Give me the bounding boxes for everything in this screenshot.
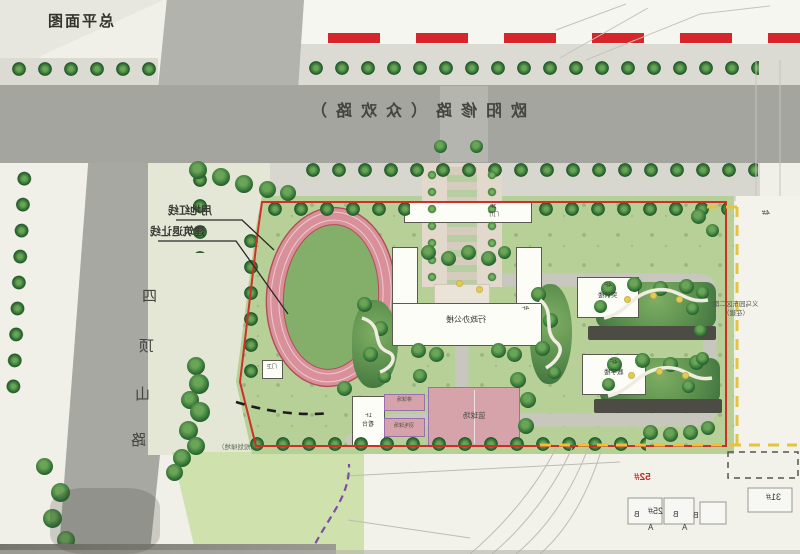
admin-label: 行政办公楼 xyxy=(446,315,486,324)
shrub xyxy=(624,296,631,303)
gate-label: 3F 门厅 xyxy=(488,203,499,219)
badminton-label: 羽毛球场 xyxy=(385,424,424,430)
garden-paths xyxy=(362,290,712,396)
shrub xyxy=(676,296,683,303)
west-road-char: 顶 xyxy=(139,338,154,355)
site-plan-sheet: 总平面图 欧阳修路（众欢路） 四 顶 山 路 用地红线 建筑退让线 3F 门厅 … xyxy=(0,0,800,554)
page-title: 总平面图 xyxy=(46,13,114,30)
plot-mark-b: B xyxy=(673,510,678,519)
shrub xyxy=(682,372,689,379)
grandstand-label: 1F 看台 xyxy=(353,412,384,430)
main-road-label: 欧阳修路（众欢路） xyxy=(250,103,580,121)
west-road-char: 四 xyxy=(142,288,157,305)
plot-mark-b: B xyxy=(693,511,698,520)
shrub xyxy=(456,280,463,287)
adjacent-project-label: 义乌园东区二期 （在建） xyxy=(696,300,776,318)
purple-dashed-line xyxy=(310,464,349,554)
basketball-label: 篮球场 xyxy=(446,412,502,421)
plot-4: 4# xyxy=(762,210,770,218)
plot-31: 31# xyxy=(766,492,781,502)
site-linework-over xyxy=(0,0,800,554)
west-road-char: 山 xyxy=(135,386,150,403)
road-shadow xyxy=(50,488,160,554)
plot-52-red: 52# xyxy=(634,472,651,484)
yellow-dashed-line xyxy=(540,207,797,445)
gray-dashed-parcel xyxy=(728,452,798,478)
shrub xyxy=(650,292,657,299)
shrub xyxy=(656,368,663,375)
west-road-char: 路 xyxy=(131,432,146,449)
shrub xyxy=(628,372,635,379)
lawn-note: （规划绿地） xyxy=(218,444,257,451)
plot-25: 25# xyxy=(648,506,663,516)
cadastral-lines-north xyxy=(556,4,780,196)
plot-mark-a: A xyxy=(682,523,687,532)
guard-label: 门卫 xyxy=(261,365,284,371)
shrub xyxy=(476,286,483,293)
volleyball-label: 排球场 xyxy=(385,398,424,404)
plot-mark-b: B xyxy=(634,510,639,519)
setback-annotation: 建筑退让线 xyxy=(150,226,205,239)
red-line-annotation: 用地红线 xyxy=(168,205,212,218)
black-dashed-line xyxy=(236,402,330,414)
admin-floors: 4F xyxy=(522,306,529,313)
cadastral-lines-south xyxy=(345,448,792,554)
plot-mark-a: A xyxy=(648,523,653,532)
